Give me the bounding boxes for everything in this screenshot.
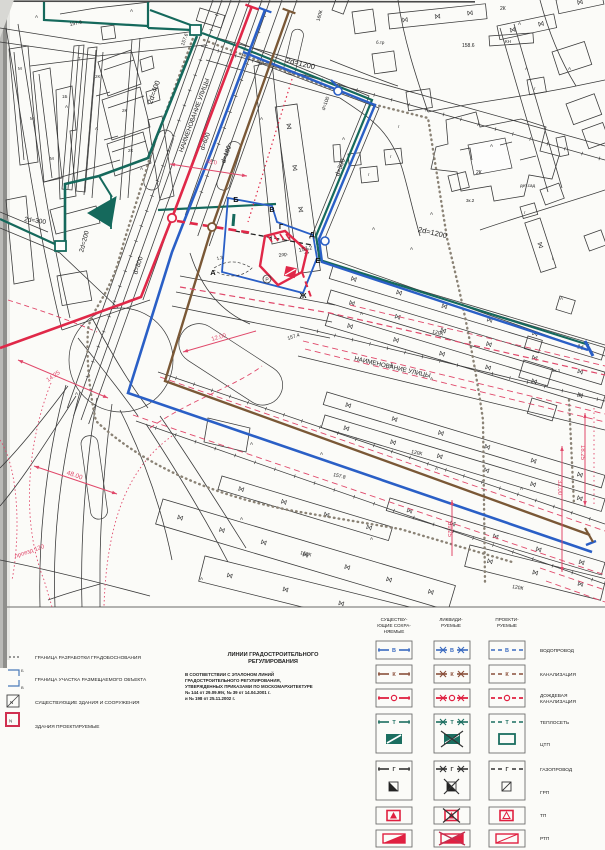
svg-text:А: А [410,246,413,251]
svg-text:ГРАДОСТРОИТЕЛЬНОГО РЕГУЛИРОВАН: ГРАДОСТРОИТЕЛЬНОГО РЕГУЛИРОВАНИЯ, [185,678,281,683]
svg-text:N: N [9,719,12,724]
svg-text:ВОДОПРОВОД: ВОДОПРОВОД [540,648,575,654]
svg-text:КАНАЛИЗАЦИЯ: КАНАЛИЗАЦИЯ [540,672,576,678]
svg-text:ТЕПЛОСЕТЬ: ТЕПЛОСЕТЬ [540,720,569,726]
svg-text:ДОЖДЕВАЯ: ДОЖДЕВАЯ [540,693,568,699]
svg-text:А: А [65,104,68,109]
svg-text:1Б: 1Б [62,94,68,99]
svg-text:В: В [269,205,275,214]
svg-text:Б: Б [233,195,239,204]
svg-text:А: А [130,8,133,13]
svg-text:А: А [360,311,363,316]
svg-text:А: А [320,451,323,456]
svg-text:М: М [30,116,34,121]
svg-text:2К: 2К [128,148,134,153]
svg-text:В: В [505,648,509,654]
svg-text:№ 144 от 29.09.99г, № 39 от 14: № 144 от 29.09.99г, № 39 от 14.04.2001 г… [185,690,271,695]
svg-text:А: А [372,226,375,231]
svg-text:А: А [520,486,523,491]
svg-text:М: М [18,66,22,71]
svg-text:158.6: 158.6 [462,43,475,49]
svg-text:В: В [392,648,396,654]
svg-text:ТП: ТП [540,813,547,819]
svg-text:А: А [560,296,563,301]
svg-text:ЛИКВИДИ-: ЛИКВИДИ- [439,617,463,622]
svg-text:А: А [568,66,571,71]
svg-text:дет.сад: дет.сад [520,183,536,188]
svg-text:НЯЕМЫЕ: НЯЕМЫЕ [384,629,405,634]
svg-text:ЮЩИЕ СОХРА-: ЮЩИЕ СОХРА- [377,623,411,628]
svg-text:СУЩЕСТВУЮЩИЕ ЗДАНИЯ И СООРУЖЕН: СУЩЕСТВУЮЩИЕ ЗДАНИЯ И СООРУЖЕНИЯ [35,700,140,706]
svg-text:2К: 2К [95,74,101,79]
svg-text:ГРАНИЦА РАЗРАБОТКИ ГРАДОБОСНОВ: ГРАНИЦА РАЗРАБОТКИ ГРАДОБОСНОВАНИЯ [35,655,141,661]
svg-text:и № 198 от 25.11.2002 г.: и № 198 от 25.11.2002 г. [185,696,235,701]
svg-text:А: А [430,211,433,216]
svg-text:4: 4 [390,363,393,369]
svg-text:КН: КН [505,39,511,44]
svg-text:ГРАНИЦА УЧАСТКА РАЗМЕЩАЕМОГО: ГРАНИЦА УЧАСТКА РАЗМЕЩАЕМОГО ОБЪЕКТА [35,677,147,683]
svg-text:Е: Е [315,256,320,265]
svg-text:18.25: 18.25 [579,445,585,461]
svg-text:А: А [430,376,433,381]
svg-text:В: В [21,685,24,690]
svg-text:А: А [370,536,373,541]
svg-text:Г: Г [279,222,284,231]
svg-text:А: А [140,166,143,171]
svg-text:2К: 2К [122,108,128,113]
svg-text:А: А [342,136,345,141]
svg-text:РУЕМЫЕ: РУЕМЫЕ [441,623,461,628]
svg-text:СУЩЕСТВУ-: СУЩЕСТВУ- [381,617,408,622]
svg-text:А: А [75,391,78,396]
svg-text:А: А [490,143,493,148]
svg-text:ГРП: ГРП [540,790,550,796]
svg-text:М: М [50,156,54,161]
svg-text:А: А [518,21,521,26]
svg-text:РТП: РТП [540,836,550,842]
svg-text:ЗДАНИЯ ПРОЕКТИРУЕМЫЕ: ЗДАНИЯ ПРОЕКТИРУЕМЫЕ [35,724,99,730]
svg-text:А: А [95,126,98,131]
svg-text:Ж: Ж [299,291,307,300]
svg-text:РУЕМЫЕ: РУЕМЫЕ [497,623,517,628]
svg-text:А: А [435,466,438,471]
svg-text:32.00: 32.00 [556,480,562,496]
svg-text:УТВЕРЖДЕННЫХ ПРИКАЗАМИ ПО МОСК: УТВЕРЖДЕННЫХ ПРИКАЗАМИ ПО МОСКОМАРХИТЕКТ… [185,684,313,689]
svg-text:А: А [240,516,243,521]
svg-text:А: А [35,14,38,19]
svg-text:А: А [210,268,216,277]
svg-text:РЕГУЛИРОВАНИЯ: РЕГУЛИРОВАНИЯ [248,659,298,665]
svg-text:А: А [200,576,203,581]
svg-text:3к.1: 3к.1 [552,368,561,373]
svg-text:ГАЗОПРОВОД: ГАЗОПРОВОД [540,767,573,773]
svg-text:2К: 2К [476,170,482,176]
svg-text:Б: Б [21,668,24,673]
svg-text:А: А [250,441,253,446]
svg-text:б.тр: б.тр [376,40,385,45]
svg-text:ЛИНИИ ГРАДОСТРОИТЕЛЬНОГО: ЛИНИИ ГРАДОСТРОИТЕЛЬНОГО [228,652,320,658]
svg-text:N: N [10,700,13,705]
svg-text:ЦТП: ЦТП [540,742,550,748]
svg-text:3к.2: 3к.2 [466,198,475,203]
svg-text:КАНАЛИЗАЦИЯ: КАНАЛИЗАЦИЯ [540,699,576,705]
svg-text:В: В [450,648,454,654]
svg-text:ПРОЕКТИ-: ПРОЕКТИ- [495,617,519,622]
svg-text:2К: 2К [500,6,506,12]
svg-text:В СООТВЕТСТВИИ С ЭТАЛОНОМ ЛИНИ: В СООТВЕТСТВИИ С ЭТАЛОНОМ ЛИНИЙ [185,672,274,677]
svg-text:39.25: 39.25 [446,522,452,538]
svg-text:А: А [260,116,263,121]
svg-text:Д: Д [309,230,315,239]
svg-text:А: А [525,66,528,71]
